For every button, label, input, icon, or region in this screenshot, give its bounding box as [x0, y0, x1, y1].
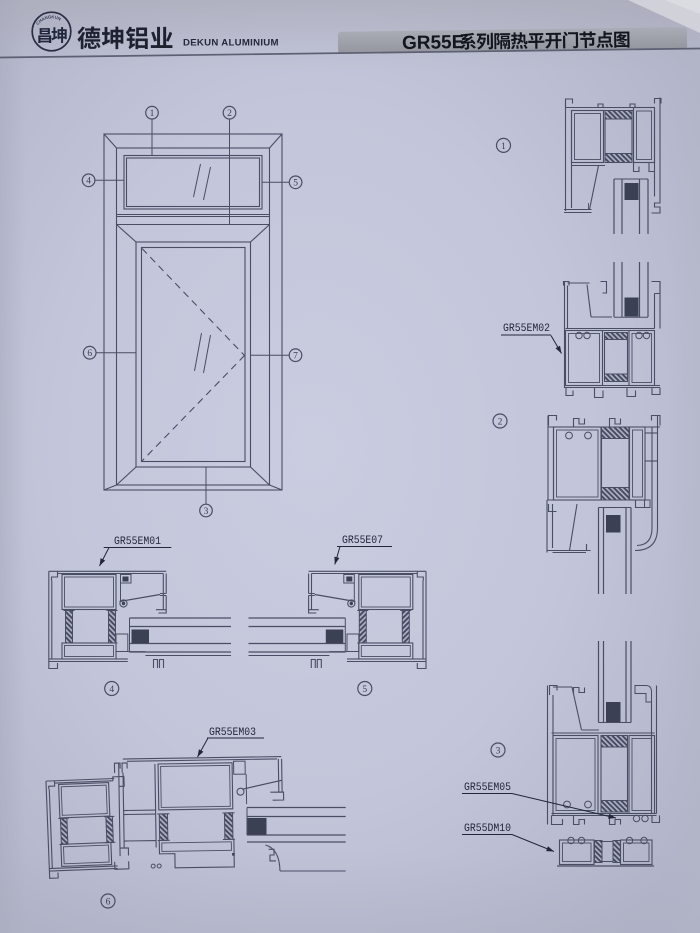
- svg-text:GR55EM05: GR55EM05: [464, 782, 511, 794]
- svg-text:GR55EM02: GR55EM02: [503, 323, 550, 335]
- svg-text:4: 4: [86, 177, 91, 187]
- svg-text:2: 2: [498, 417, 503, 427]
- svg-text:4: 4: [109, 685, 114, 695]
- svg-text:5: 5: [293, 179, 298, 189]
- svg-text:7: 7: [293, 352, 298, 362]
- svg-text:DEKUN ALUMINIUM: DEKUN ALUMINIUM: [183, 38, 279, 49]
- svg-text:GR55EM03: GR55EM03: [209, 727, 256, 739]
- svg-text:5: 5: [362, 685, 367, 695]
- svg-text:1: 1: [501, 142, 506, 152]
- svg-text:3: 3: [496, 746, 501, 756]
- svg-text:6: 6: [87, 349, 92, 359]
- svg-text:3: 3: [204, 507, 209, 517]
- svg-text:GR55DM10: GR55DM10: [464, 823, 511, 835]
- svg-text:6: 6: [106, 897, 111, 907]
- svg-text:2: 2: [227, 109, 232, 119]
- svg-text:GR55E: GR55E: [402, 32, 465, 54]
- svg-text:GR55EM01: GR55EM01: [114, 536, 161, 548]
- svg-text:GR55E07: GR55E07: [342, 535, 383, 547]
- svg-text:1: 1: [150, 109, 155, 119]
